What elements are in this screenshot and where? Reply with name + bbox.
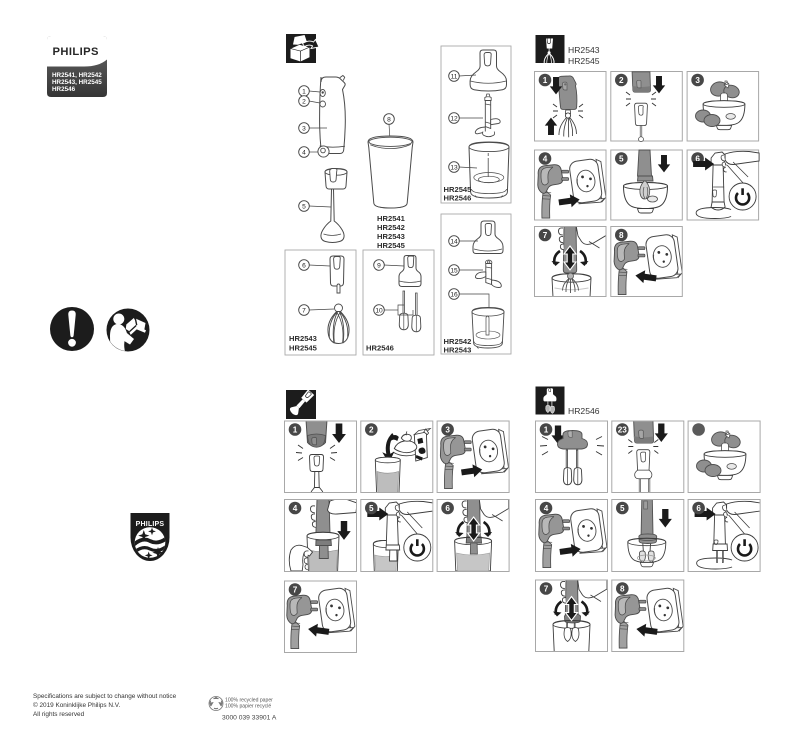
svg-text:23: 23 (618, 426, 628, 435)
svg-text:6: 6 (696, 504, 701, 513)
svg-text:9: 9 (377, 262, 381, 269)
svg-text:4: 4 (293, 504, 298, 513)
svg-text:HR2541: HR2541 (377, 214, 406, 223)
svg-text:16: 16 (450, 291, 458, 298)
svg-text:7: 7 (544, 585, 549, 594)
svg-text:HR2546: HR2546 (366, 344, 394, 353)
svg-text:4: 4 (544, 504, 549, 513)
svg-text:HR2545: HR2545 (568, 56, 600, 66)
svg-text:8: 8 (620, 585, 625, 594)
svg-text:6: 6 (445, 504, 450, 513)
svg-text:12: 12 (450, 115, 458, 122)
svg-text:7: 7 (302, 307, 306, 314)
svg-text:5: 5 (619, 155, 624, 164)
svg-text:7: 7 (543, 231, 548, 240)
svg-text:8: 8 (387, 116, 391, 123)
svg-text:PHILIPS: PHILIPS (53, 46, 99, 58)
svg-text:8: 8 (619, 231, 624, 240)
svg-text:1: 1 (302, 88, 306, 95)
svg-text:HR2543: HR2543 (444, 346, 472, 355)
svg-text:HR2542: HR2542 (377, 223, 405, 232)
svg-text:© 2019 Koninklijke Philips N.V: © 2019 Koninklijke Philips N.V. (33, 701, 120, 709)
svg-text:5: 5 (369, 504, 374, 513)
svg-text:HR2545: HR2545 (289, 344, 318, 353)
svg-text:HR2545: HR2545 (377, 241, 406, 250)
svg-text:All rights reserved: All rights reserved (33, 711, 85, 718)
svg-text:HR2541, HR2542: HR2541, HR2542 (52, 72, 102, 79)
svg-text:2: 2 (619, 76, 624, 85)
svg-text:Specifications are subject to: Specifications are subject to change wit… (33, 693, 177, 700)
svg-text:3: 3 (695, 76, 700, 85)
svg-text:HR2543: HR2543 (568, 45, 600, 55)
svg-text:1: 1 (544, 426, 549, 435)
svg-text:2: 2 (369, 426, 374, 435)
svg-text:HR2546: HR2546 (444, 194, 472, 203)
svg-text:HR2543, HR2545: HR2543, HR2545 (52, 79, 102, 86)
svg-text:HR2543: HR2543 (289, 334, 317, 343)
svg-text:3: 3 (445, 426, 450, 435)
svg-text:10: 10 (375, 307, 383, 314)
svg-text:100% papier recyclé: 100% papier recyclé (225, 704, 271, 710)
svg-text:11: 11 (451, 73, 458, 80)
svg-text:4: 4 (302, 149, 306, 156)
svg-text:5: 5 (302, 203, 306, 210)
svg-text:1: 1 (293, 426, 298, 435)
svg-text:HR2546: HR2546 (52, 86, 76, 93)
svg-text:HR2546: HR2546 (568, 406, 600, 416)
svg-text:15: 15 (450, 267, 458, 274)
svg-text:13: 13 (450, 164, 458, 171)
svg-text:3: 3 (302, 125, 306, 132)
svg-text:2: 2 (302, 98, 306, 105)
svg-text:5: 5 (620, 504, 625, 513)
svg-text:3000 039 33901 A: 3000 039 33901 A (222, 715, 277, 722)
svg-text:14: 14 (450, 238, 458, 245)
svg-text:HR2543: HR2543 (377, 232, 405, 241)
svg-text:PHILIPS: PHILIPS (136, 521, 165, 528)
svg-text:1: 1 (543, 76, 548, 85)
svg-text:4: 4 (543, 155, 548, 164)
svg-text:7: 7 (293, 586, 298, 595)
svg-text:6: 6 (302, 262, 306, 269)
